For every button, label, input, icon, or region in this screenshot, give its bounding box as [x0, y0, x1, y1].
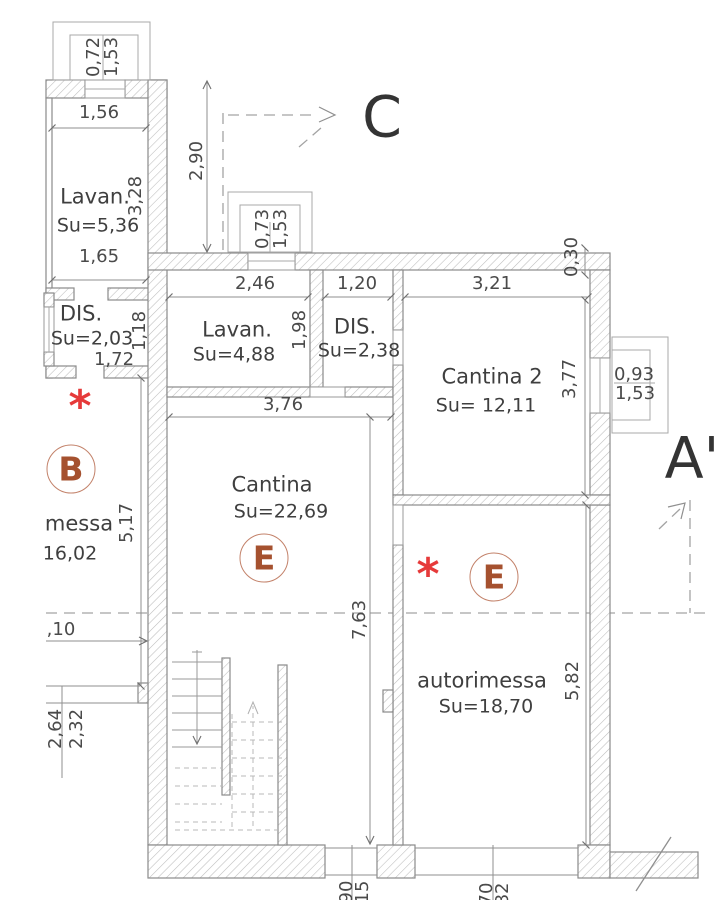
asterisk-right: *: [416, 553, 439, 597]
dim-window-e-height: 1,53: [615, 385, 655, 403]
plan-drawing: [0, 0, 719, 900]
dim-wall-top-right: 0,30: [563, 237, 581, 277]
unit-marker-b: B: [47, 445, 96, 494]
dim-window-nw-height: 1,53: [103, 37, 121, 77]
dim-lavanderia-c-width: 2,46: [235, 275, 275, 293]
dim-b-notch-1: 2,64: [47, 709, 65, 749]
section-marker-c: C: [362, 90, 402, 147]
dim-autorimessa-height: 5,82: [564, 661, 582, 701]
dim-b-height: 5,17: [118, 503, 136, 543]
dim-dis-w-width: 1,72: [94, 351, 134, 369]
area-label-lavanderia-nw: Su=5,36: [57, 217, 139, 236]
dim-window-c-height: 1,53: [272, 209, 290, 249]
dim-cantina2-width: 3,21: [472, 275, 512, 293]
room-label-autorimessa: autorimessa: [417, 671, 547, 692]
dim-lavanderia-nw-top: 1,56: [79, 104, 119, 122]
dim-window-e-width: 0,93: [614, 366, 654, 384]
unit-marker-e-cantina: E: [240, 534, 289, 583]
dim-cantina-height: 7,63: [351, 600, 369, 640]
room-label-cantina2: Cantina 2: [441, 367, 542, 388]
floor-plan: 0,72 1,53 1,56 Lavan. Su=5,36 3,28 1,65 …: [0, 0, 719, 900]
dim-bottom-cut-4: 82: [494, 883, 512, 900]
dim-lavanderia-nw-bottom: 1,65: [79, 248, 119, 266]
area-label-cantina2: Su= 12,11: [436, 397, 536, 416]
room-label-cantina: Cantina: [231, 475, 312, 496]
area-label-cantina: Su=22,69: [234, 503, 328, 522]
dim-cantina2-height: 3,77: [561, 359, 579, 399]
room-label-lavanderia-nw: Lavan.: [60, 187, 130, 208]
room-label-dis-c: DIS.: [334, 317, 376, 338]
section-arrowheads: [319, 107, 685, 519]
asterisk-left: *: [68, 385, 91, 429]
area-label-lavanderia-c: Su=4,88: [193, 346, 275, 365]
room-label-dis-w: DIS.: [60, 304, 102, 325]
area-label-dis-c: Su=2,38: [318, 342, 400, 361]
room-label-lavanderia-c: Lavan.: [202, 320, 272, 341]
dim-b-notch-2: 2,32: [68, 709, 86, 749]
unit-marker-e-autorimessa: E: [470, 553, 519, 602]
dim-b-cut: ,10: [47, 621, 76, 639]
dim-dis-c-width: 1,20: [337, 275, 377, 293]
area-label-dis-w: Su=2,03: [51, 330, 133, 349]
room-label-b-partial: messa: [45, 514, 113, 535]
dim-lavanderia-nw-height: 3,28: [127, 176, 145, 216]
dim-wing-gap-height: 2,90: [188, 141, 206, 181]
area-label-autorimessa: Su=18,70: [439, 698, 533, 717]
section-marker-a-prime: A': [665, 431, 719, 488]
dim-lavanderia-c-height: 1,98: [291, 310, 309, 350]
area-label-b-partial: 16,02: [43, 545, 97, 564]
staircase: [172, 650, 222, 747]
dim-bottom-cut-2: 15: [354, 881, 372, 900]
dim-dis-w-height: 1,18: [131, 311, 149, 351]
dim-cantina-width: 3,76: [263, 396, 303, 414]
